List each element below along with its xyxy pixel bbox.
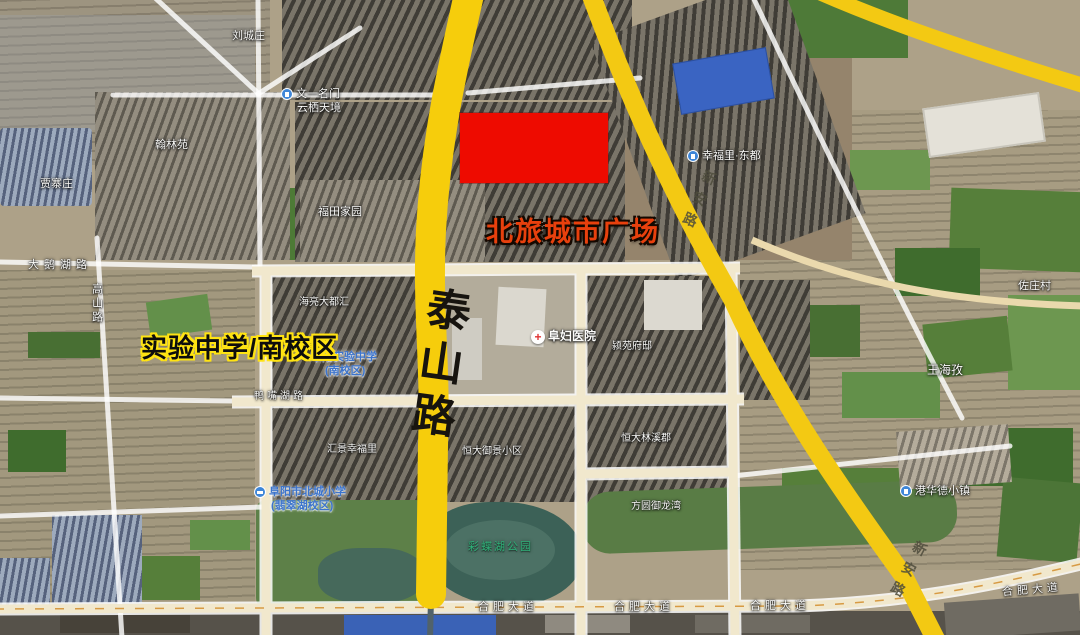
building-icon <box>281 88 293 100</box>
hefei-avenue-label: 合肥大道 <box>478 601 538 614</box>
hefei-avenue-label: 合肥大道 <box>750 600 810 613</box>
residence-label: 港华德小镇 <box>915 485 970 498</box>
residence-poi: 文一名门 <box>281 88 340 101</box>
school-label: (南校区) <box>325 365 365 378</box>
residence-label: 汇景幸福里 <box>327 444 377 456</box>
village-label: 王海孜 <box>927 364 963 378</box>
residence-label: 翰林苑 <box>155 139 188 152</box>
school-poi: 阜阳市北城小学 <box>254 486 346 499</box>
residence-label: 福田家园 <box>318 206 362 219</box>
residence-label: 恒大御景小区 <box>462 446 522 458</box>
hospital-icon <box>531 330 545 344</box>
village-label: 刘城庄 <box>232 30 265 43</box>
satellite-map: 北旅城市广场 实验中学/南校区 泰山路 新安路 新安路 大鹅湖路 高山路 鸭嘴湖… <box>0 0 1080 635</box>
residence-label: 方圆御龙湾 <box>631 501 681 513</box>
yazuihu-road-label: 鸭嘴湖路 <box>254 391 306 403</box>
daehu-road-label: 大鹅湖路 <box>28 259 92 272</box>
building-icon <box>687 150 699 162</box>
building-icon <box>900 485 912 497</box>
hefei-avenue-label: 合肥大道 <box>614 601 674 614</box>
highlight-rect <box>460 113 608 183</box>
village-label: 佐庄村 <box>1018 280 1051 293</box>
village-label: 贾寨庄 <box>40 178 73 191</box>
residence-poi: 港华德小镇 <box>900 485 970 498</box>
park-label: 彩蝶湖公园 <box>468 541 533 554</box>
residence-label: 云栖天境 <box>297 102 341 115</box>
hospital-label: 阜妇医院 <box>548 330 596 344</box>
school-label: (翡翠湖校区) <box>271 500 333 513</box>
residence-label: 文一名门 <box>296 88 340 101</box>
school-icon <box>254 486 266 498</box>
residence-label: 恒大林溪郡 <box>621 433 671 445</box>
residence-label: 颍苑府邸 <box>612 341 652 353</box>
residence-label: 海亮大都汇 <box>299 297 349 309</box>
school-label: 阜阳市北城小学 <box>269 486 346 499</box>
plaza-highlight-label: 北旅城市广场 <box>486 210 660 249</box>
residence-label: 幸福里·东都 <box>702 150 761 163</box>
gaoshan-road-label: 高山路 <box>90 283 103 325</box>
residence-poi: 幸福里·东都 <box>687 150 761 163</box>
school-highlight-label: 实验中学/南校区 <box>141 328 338 365</box>
hospital-poi: 阜妇医院 <box>531 330 596 344</box>
